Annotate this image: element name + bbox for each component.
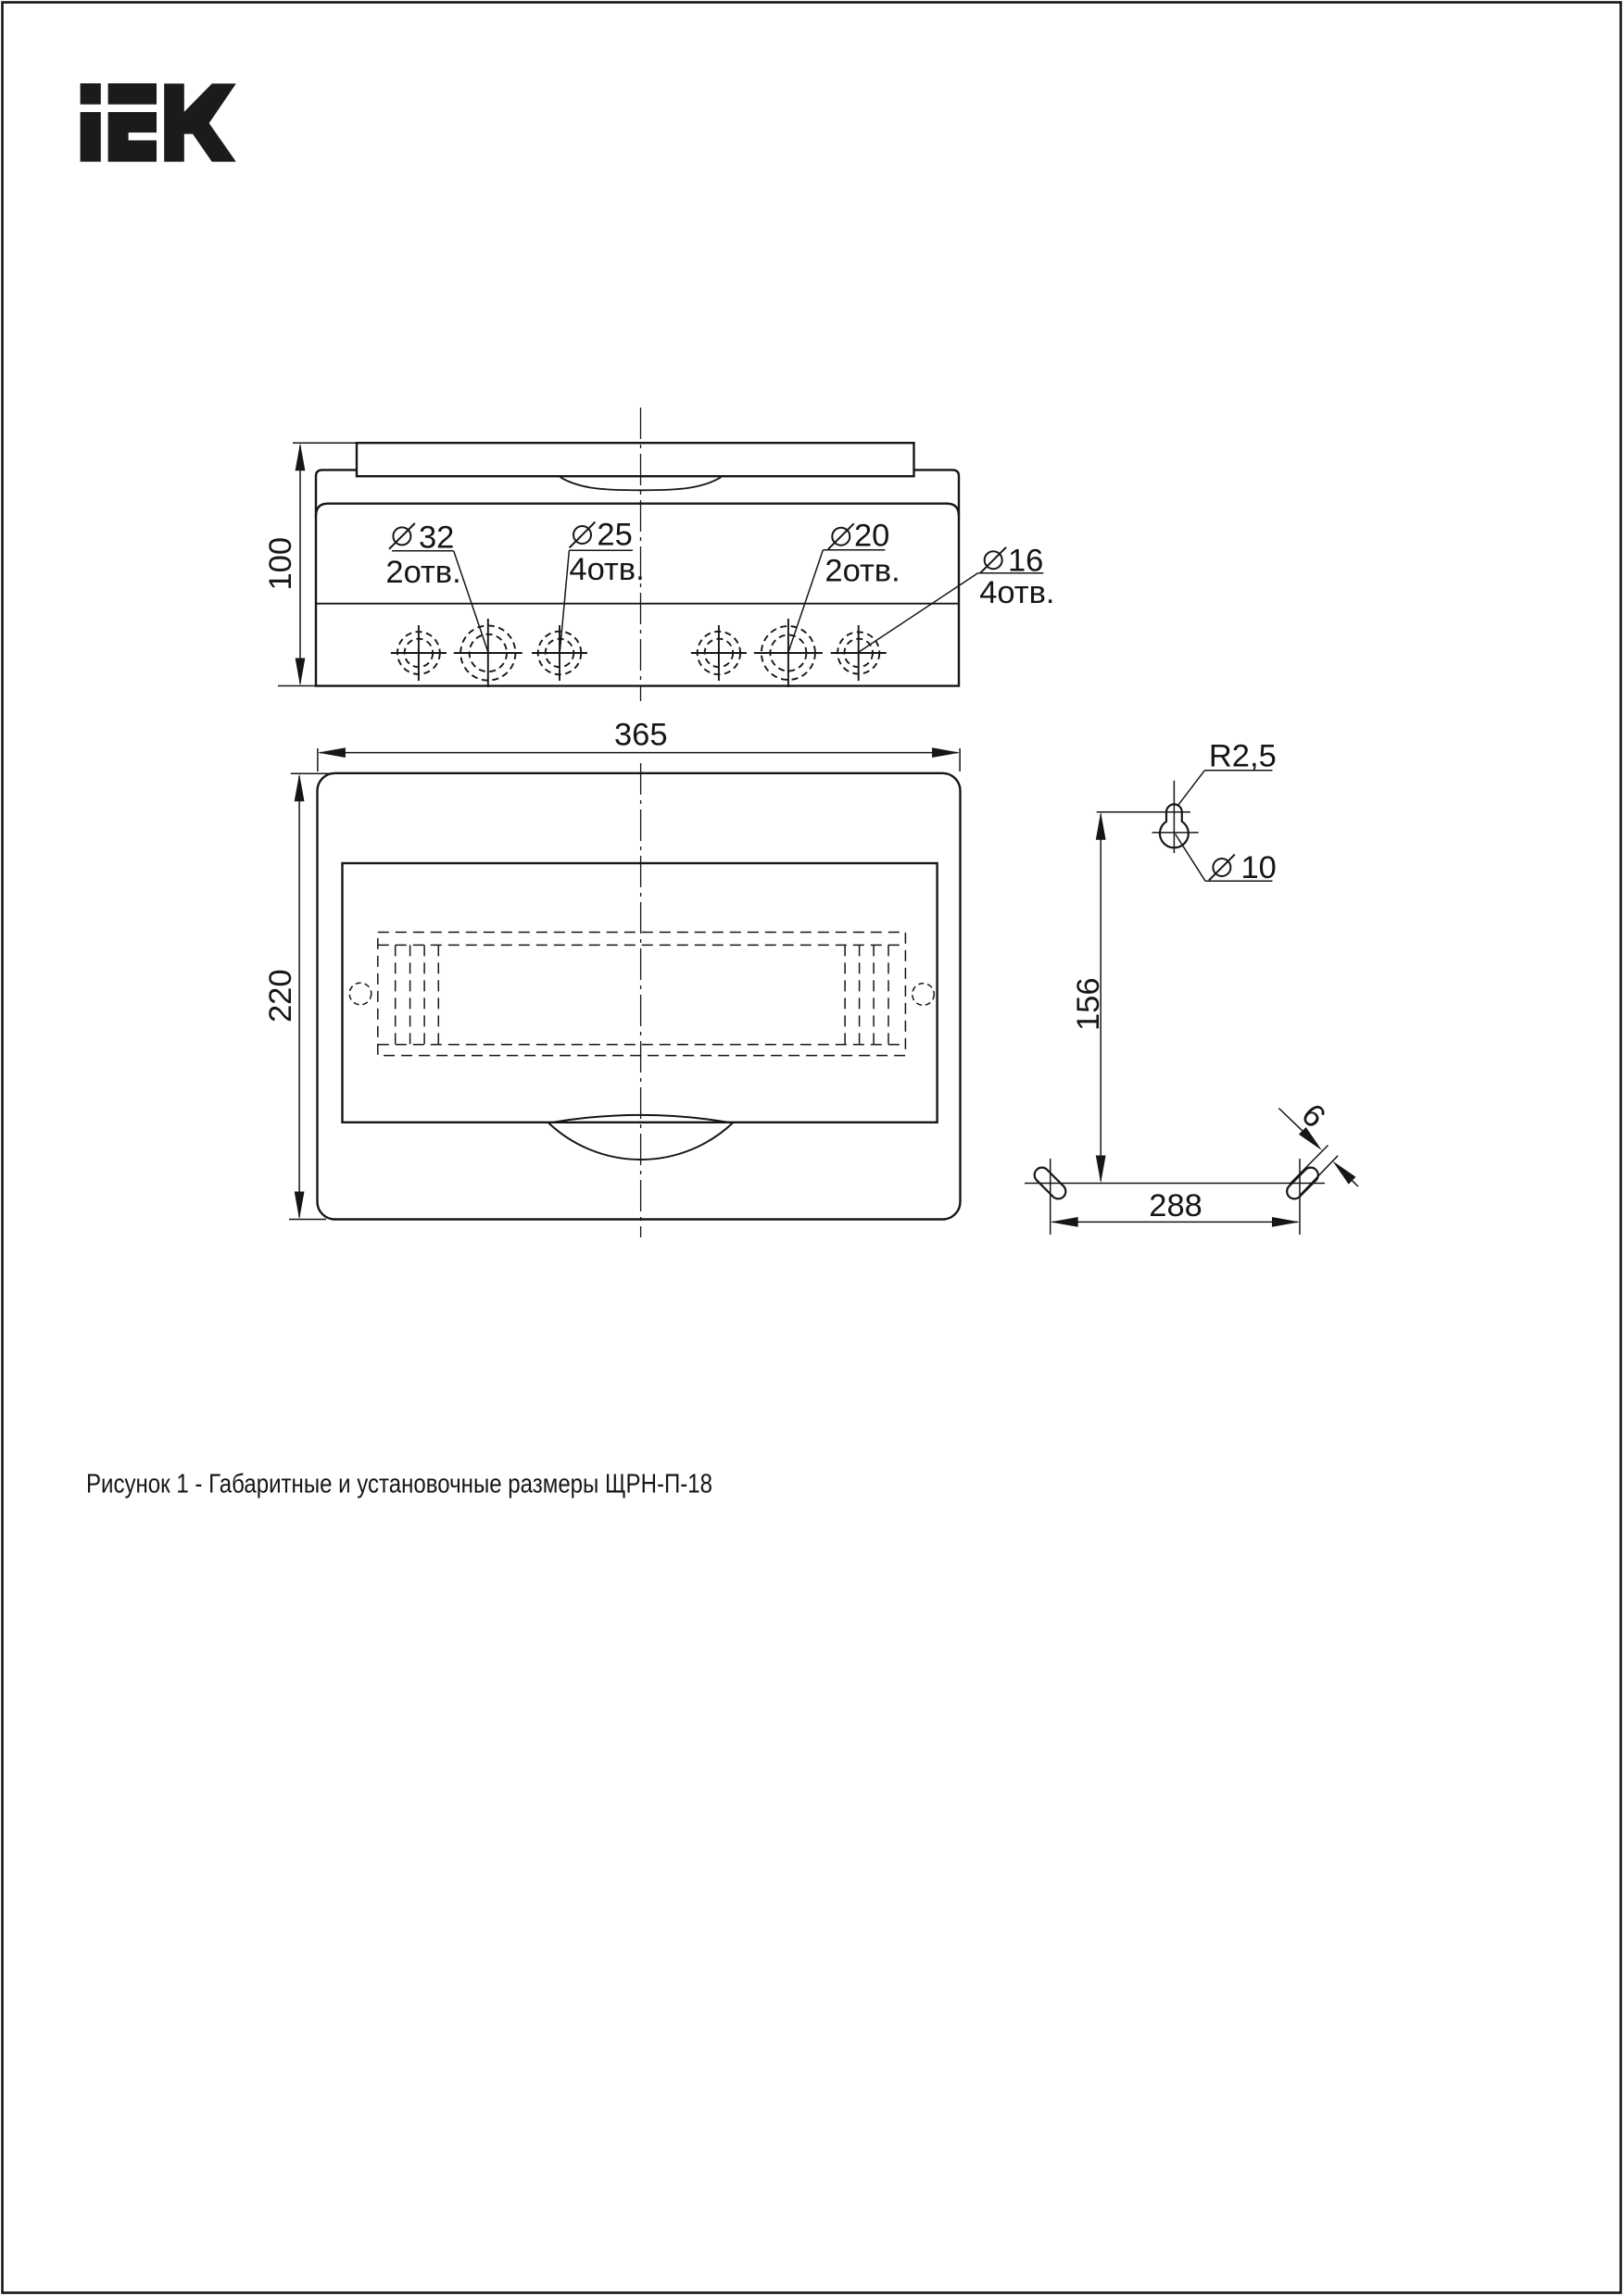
svg-text:100: 100 bbox=[263, 537, 298, 591]
svg-text:220: 220 bbox=[263, 969, 298, 1023]
svg-text:10: 10 bbox=[1241, 850, 1277, 885]
svg-text:25: 25 bbox=[597, 517, 632, 552]
svg-text:156: 156 bbox=[1071, 977, 1106, 1031]
svg-text:4отв.: 4отв. bbox=[979, 575, 1054, 610]
svg-text:288: 288 bbox=[1149, 1188, 1202, 1223]
svg-text:2отв.: 2отв. bbox=[825, 553, 900, 588]
svg-text:365: 365 bbox=[614, 717, 668, 752]
svg-text:R2,5: R2,5 bbox=[1209, 738, 1277, 773]
svg-text:Рисунок 1 - Габаритные и устан: Рисунок 1 - Габаритные и установочные ра… bbox=[86, 1470, 712, 1499]
svg-text:2отв.: 2отв. bbox=[385, 555, 460, 590]
svg-text:32: 32 bbox=[419, 521, 454, 556]
svg-text:20: 20 bbox=[854, 519, 889, 554]
svg-text:4отв.: 4отв. bbox=[569, 552, 644, 587]
